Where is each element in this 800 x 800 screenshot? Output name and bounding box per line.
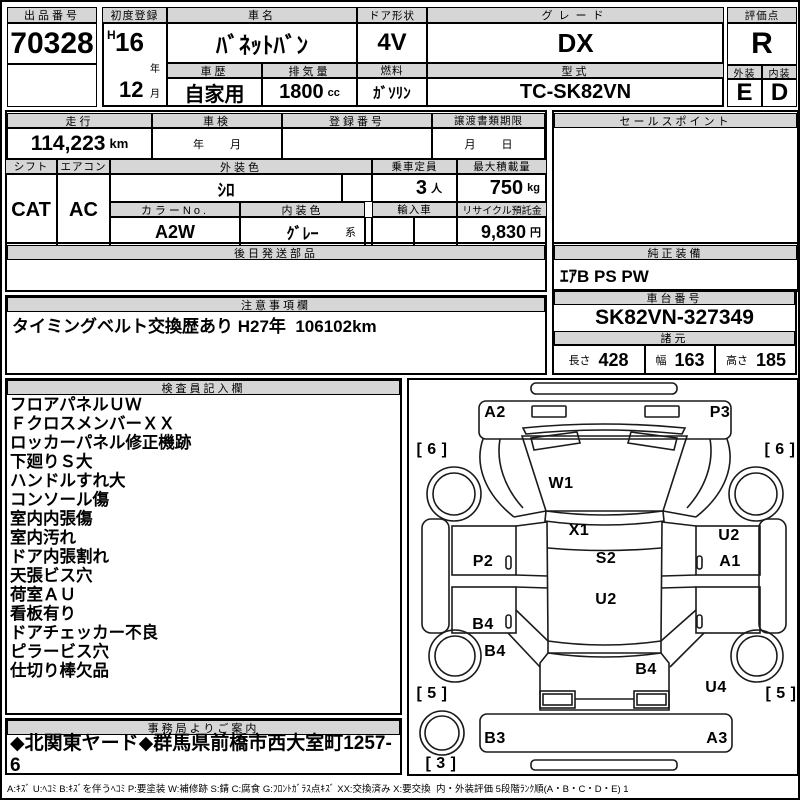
capacity-value: 3 人	[372, 174, 457, 202]
first-registration-year: 16	[115, 27, 144, 58]
later-shipment-parts-header: 後日発送部品	[7, 245, 545, 260]
damage-code-label: U2	[595, 591, 616, 609]
exterior-color-header: 外装色	[110, 159, 372, 174]
caution-notes-header: 注意事項欄	[7, 297, 545, 312]
capacity-unit: 人	[431, 180, 442, 196]
door-shape-header: ドア形状	[357, 7, 427, 23]
car-name-value: ﾊﾞﾈｯﾄﾊﾞﾝ	[167, 23, 357, 63]
mileage-header: 走行	[7, 113, 152, 128]
recycle-unit: 円	[530, 224, 541, 240]
payload-value: 750 kg	[457, 174, 547, 202]
damage-code-label: [ 6 ]	[417, 441, 448, 459]
damage-code-label: B3	[484, 730, 505, 748]
length-label: 長さ	[568, 352, 590, 368]
inspector-note: 天張ビス穴	[10, 567, 395, 586]
sales-point-header: セールスポイント	[554, 113, 797, 128]
damage-code-label: P2	[473, 553, 494, 571]
history-value: 自家用	[167, 78, 262, 107]
payload-number: 750	[490, 177, 523, 200]
inspector-note: 室内汚れ	[10, 529, 395, 548]
damage-code-label: U4	[705, 679, 726, 697]
recycle-deposit-header: リサイクル預託金	[457, 202, 547, 217]
damage-code-label: B4	[635, 661, 656, 679]
capacity-header: 乗車定員	[372, 159, 457, 174]
damage-code-label: A3	[706, 730, 727, 748]
exterior-color-empty-cell	[342, 174, 372, 202]
model-code-value: TC-SK82VN	[427, 78, 724, 107]
interior-color-header: 内装色	[240, 202, 365, 217]
registration-number-value	[282, 128, 432, 159]
recycle-number: 9,830	[481, 222, 526, 243]
transfer-deadline-header: 譲渡書類期限	[432, 113, 545, 128]
inspector-note: 室内内張傷	[10, 510, 395, 529]
inspector-note: ＦクロスメンバーＸＸ	[10, 415, 395, 434]
grade-value: DX	[427, 23, 724, 63]
mileage-unit: km	[109, 136, 128, 151]
inspector-notes-list: フロアパネルＵＷＦクロスメンバーＸＸロッカーパネル修正機跡下廻りＳ大ハンドルすれ…	[10, 396, 395, 696]
interior-grade-value: D	[762, 79, 797, 107]
caution-notes-value: タイミングベルト交換歴あり H27年 106102km	[12, 312, 542, 336]
mileage-value: 114,223 km	[7, 128, 152, 159]
damage-code-label: B4	[484, 643, 505, 661]
shift-header: シフト	[5, 159, 57, 174]
width-value: 163	[674, 350, 704, 371]
fuel-header: 燃料	[357, 63, 427, 78]
interior-grade-header: 内装	[762, 65, 797, 79]
transfer-month-suffix: 月	[465, 136, 476, 152]
score-value: R	[727, 23, 797, 65]
length-value: 428	[598, 350, 628, 371]
inspection-month-suffix: 月	[230, 136, 241, 152]
payload-header: 最大積載量	[457, 159, 547, 174]
interior-color-suffix: 系	[345, 224, 356, 240]
damage-code-label: S2	[596, 550, 617, 568]
damage-code-label: A1	[719, 553, 740, 571]
history-header: 車歴	[167, 63, 262, 78]
registration-number-header: 登録番号	[282, 113, 432, 128]
exterior-color-value: ｼﾛ	[110, 174, 342, 202]
inspector-note: ハンドルすれ大	[10, 472, 395, 491]
car-damage-diagram: A2P3[ 6 ][ 6 ]W1X1P2S2U2A1U2B4B4B4U4[ 5 …	[407, 378, 799, 776]
height-cell: 高さ 185	[715, 345, 797, 375]
damage-code-label: W1	[549, 475, 574, 493]
inspector-note: コンソール傷	[10, 491, 395, 510]
inspector-note: ドアチェッカー不良	[10, 624, 395, 643]
damage-code-label: [ 5 ]	[417, 685, 448, 703]
damage-code-label: X1	[569, 522, 590, 540]
inspector-notes-header: 検査員記入欄	[7, 380, 400, 395]
dimensions-header: 諸元	[554, 331, 795, 345]
exterior-grade-value: E	[727, 79, 762, 107]
mileage-number: 114,223	[31, 132, 106, 156]
sales-point-box	[552, 110, 799, 247]
color-number-header: カラーNo.	[110, 202, 240, 217]
damage-code-label: U2	[718, 527, 739, 545]
displacement-value: 1800 cc	[262, 78, 357, 107]
height-value: 185	[756, 350, 786, 371]
chassis-number-value: SK82VN-327349	[554, 305, 795, 331]
lot-number-empty-cell	[7, 64, 97, 107]
inspection-year-suffix: 年	[193, 136, 204, 152]
import-header: 輸入車	[372, 202, 457, 217]
year-suffix: 年	[150, 60, 160, 75]
inspection-expiry-header: 車検	[152, 113, 282, 128]
lot-number-header: 出品番号	[7, 7, 97, 23]
inspector-note: 看板有り	[10, 605, 395, 624]
first-registration-header: 初度登録	[102, 7, 167, 23]
door-shape-value: 4V	[357, 23, 427, 63]
damage-code-label: A2	[484, 404, 505, 422]
displacement-unit: cc	[328, 87, 340, 99]
transfer-deadline-value: 月 日	[432, 128, 545, 159]
inspector-note: ドア内張割れ	[10, 548, 395, 567]
fuel-value: ｶﾞｿﾘﾝ	[357, 78, 427, 107]
month-suffix: 月	[150, 85, 160, 100]
legend-line: A:ｷｽﾞ U:ﾍｺﾐ B:ｷｽﾞを伴うﾍｺﾐ P:要塗装 W:補修跡 S:錆 …	[7, 781, 797, 795]
auction-sheet: 出品番号 70328 初度登録 H 16 年 12 月 車名 ﾊﾞﾈｯﾄﾊﾞﾝ …	[0, 0, 800, 800]
damage-code-layer: A2P3[ 6 ][ 6 ]W1X1P2S2U2A1U2B4B4B4U4[ 5 …	[409, 380, 797, 774]
aircon-header: エアコン	[57, 159, 110, 174]
height-label: 高さ	[726, 352, 748, 368]
shift-value: CAT	[5, 174, 57, 247]
score-header: 評価点	[727, 7, 797, 23]
length-cell: 長さ 428	[552, 345, 645, 375]
first-registration-month: 12	[119, 77, 143, 103]
factory-equipment-header: 純正装備	[554, 245, 797, 260]
payload-unit: kg	[527, 182, 540, 194]
inspection-expiry-value: 年 月	[152, 128, 282, 159]
damage-code-label: P3	[710, 404, 731, 422]
grade-header: グレード	[427, 7, 724, 23]
inspector-note: フロアパネルＵＷ	[10, 396, 395, 415]
damage-code-label: B4	[472, 616, 493, 634]
inspector-note: ピラービス穴	[10, 643, 395, 662]
transfer-day-suffix: 日	[502, 136, 513, 152]
first-registration-cell: H 16 年 12 月	[102, 23, 167, 107]
factory-equipment-value: ｴｱB PS PW	[560, 262, 790, 286]
inspector-note: 仕切り棒欠品	[10, 662, 395, 681]
office-notice-value: ◆北関東ヤード◆群馬県前橋市西大室町1257-6	[10, 738, 397, 766]
car-name-header: 車名	[167, 7, 357, 23]
chassis-number-header: 車台番号	[554, 291, 795, 305]
inspector-note: ロッカーパネル修正機跡	[10, 434, 395, 453]
model-code-header: 型式	[427, 63, 724, 78]
inspector-note: 下廻りＳ大	[10, 453, 395, 472]
inspector-note: 荷室ＡＵ	[10, 586, 395, 605]
displacement-header: 排気量	[262, 63, 357, 78]
interior-color-name: ｸﾞﾚｰ	[286, 220, 318, 244]
aircon-value: AC	[57, 174, 110, 247]
exterior-grade-header: 外装	[727, 65, 762, 79]
width-cell: 幅 163	[645, 345, 715, 375]
damage-code-label: [ 6 ]	[765, 441, 796, 459]
displacement-number: 1800	[279, 81, 324, 104]
capacity-number: 3	[416, 177, 427, 200]
width-label: 幅	[655, 352, 666, 368]
damage-code-label: [ 3 ]	[426, 755, 457, 773]
damage-code-label: [ 5 ]	[766, 685, 797, 703]
lot-number-value: 70328	[7, 23, 97, 64]
